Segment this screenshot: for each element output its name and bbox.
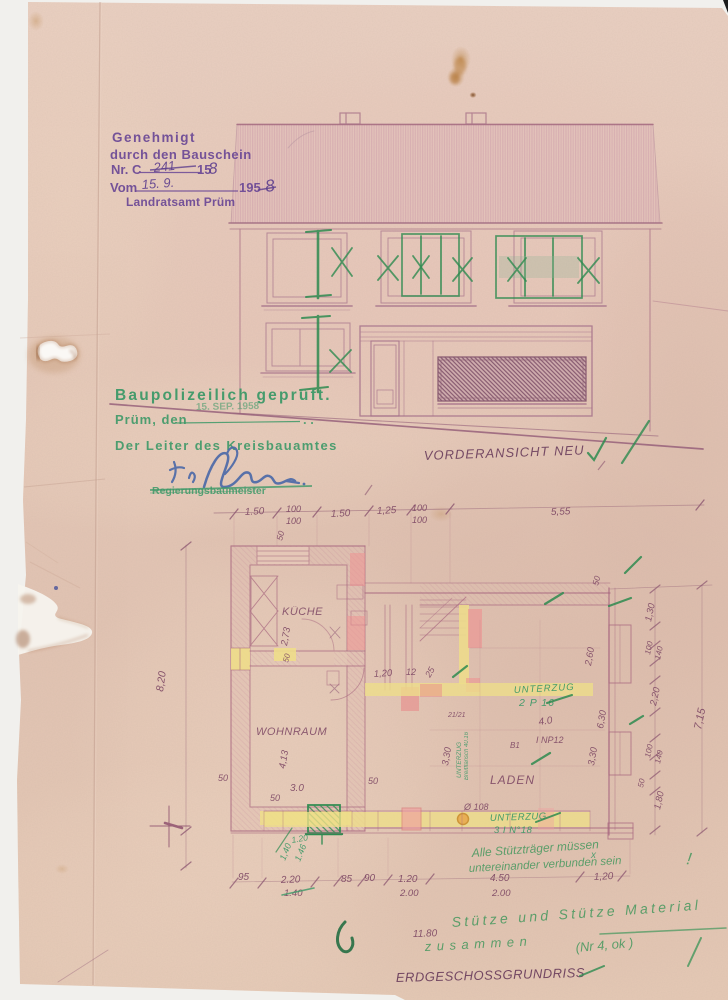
svg-text:LADEN: LADEN [490,773,535,787]
svg-text:1.50: 1.50 [331,508,351,520]
svg-text:85: 85 [341,874,353,885]
svg-text:95: 95 [238,872,250,883]
svg-text:Breitflansch 40.16: Breitflansch 40.16 [464,731,470,780]
svg-text:3.0: 3.0 [290,783,304,794]
svg-text:50: 50 [270,793,280,803]
svg-text:Prüm, den: Prüm, den [115,412,188,427]
svg-text:. .: . . [303,412,314,427]
svg-text:90: 90 [364,873,376,884]
svg-text:KÜCHE: KÜCHE [282,606,323,618]
svg-text:100: 100 [412,515,427,525]
svg-text:durch den Bauschein: durch den Bauschein [110,147,252,162]
svg-text:Landratsamt Prüm: Landratsamt Prüm [126,195,235,209]
svg-text:WOHNRAUM: WOHNRAUM [256,726,328,738]
svg-text:Genehmigt: Genehmigt [112,130,196,145]
svg-text:50: 50 [218,773,228,783]
svg-text:2.00: 2.00 [399,888,419,899]
svg-text:15. 9.: 15. 9. [141,175,174,192]
svg-text:2.00: 2.00 [491,888,511,899]
svg-text:I NP12: I NP12 [536,735,564,745]
svg-text:5,55: 5,55 [551,506,571,518]
svg-text:100: 100 [286,516,301,526]
svg-text:1,20: 1,20 [594,871,614,883]
svg-text:50: 50 [368,776,378,786]
svg-text:21/21: 21/21 [447,712,466,719]
svg-text:12: 12 [406,667,416,677]
svg-text:1,25: 1,25 [377,505,397,517]
svg-text:1.20: 1.20 [398,874,418,885]
svg-text:Ø 108: Ø 108 [463,802,489,812]
svg-text:Nr. C: Nr. C [111,162,142,177]
svg-text:195: 195 [239,180,261,195]
svg-text:8: 8 [208,160,218,178]
svg-text:15. SEP. 1958: 15. SEP. 1958 [196,401,260,413]
svg-text:4.50: 4.50 [490,873,510,884]
svg-text:B1: B1 [510,741,520,750]
svg-text:2.20: 2.20 [280,874,301,886]
svg-text:Der Leiter des Kreisbauamtes: Der Leiter des Kreisbauamtes [115,438,338,453]
svg-text:4.0: 4.0 [538,715,554,728]
svg-text:3 I N°18: 3 I N°18 [494,825,533,836]
svg-text:1.50: 1.50 [245,506,265,518]
svg-text:241: 241 [152,158,176,175]
svg-text:100: 100 [286,504,301,514]
svg-text:1,20: 1,20 [373,668,393,680]
svg-text:Vom: Vom [110,180,137,195]
svg-text:UNTERZUG: UNTERZUG [456,742,463,778]
svg-text:100: 100 [412,503,427,513]
